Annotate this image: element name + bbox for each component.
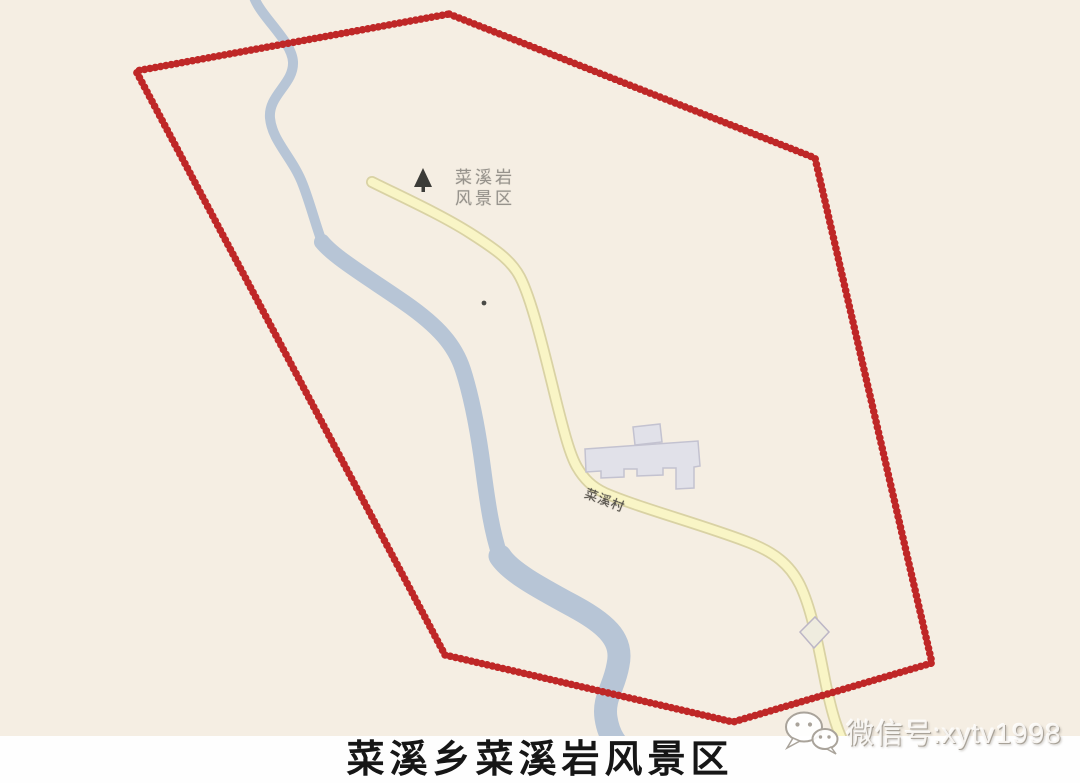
map-canvas: 菜溪岩 风景区 菜溪村	[0, 0, 1080, 736]
watermark: 微信号:xytv1998	[783, 708, 1062, 756]
watermark-text: 微信号:xytv1998	[846, 712, 1062, 752]
scenic-area-label: 菜溪岩 风景区	[455, 167, 515, 209]
river-middle	[322, 242, 500, 556]
building-main	[585, 441, 700, 489]
poi-dot-icon	[482, 301, 487, 306]
building-small-upper	[633, 424, 662, 445]
map-caption: 菜溪乡菜溪岩风景区	[346, 728, 733, 783]
building-cluster	[585, 424, 700, 489]
building-roadside	[800, 617, 829, 648]
scenic-area-label-line2: 风景区	[455, 188, 515, 209]
scenic-area-label-line1: 菜溪岩	[455, 167, 515, 188]
river-lower	[500, 556, 626, 736]
tree-icon	[414, 168, 432, 192]
wechat-icon	[783, 708, 841, 756]
map-figure: 菜溪岩 风景区 菜溪村 菜溪乡菜溪岩风景区 微信号:xytv1998	[0, 0, 1080, 783]
river	[253, 0, 626, 736]
